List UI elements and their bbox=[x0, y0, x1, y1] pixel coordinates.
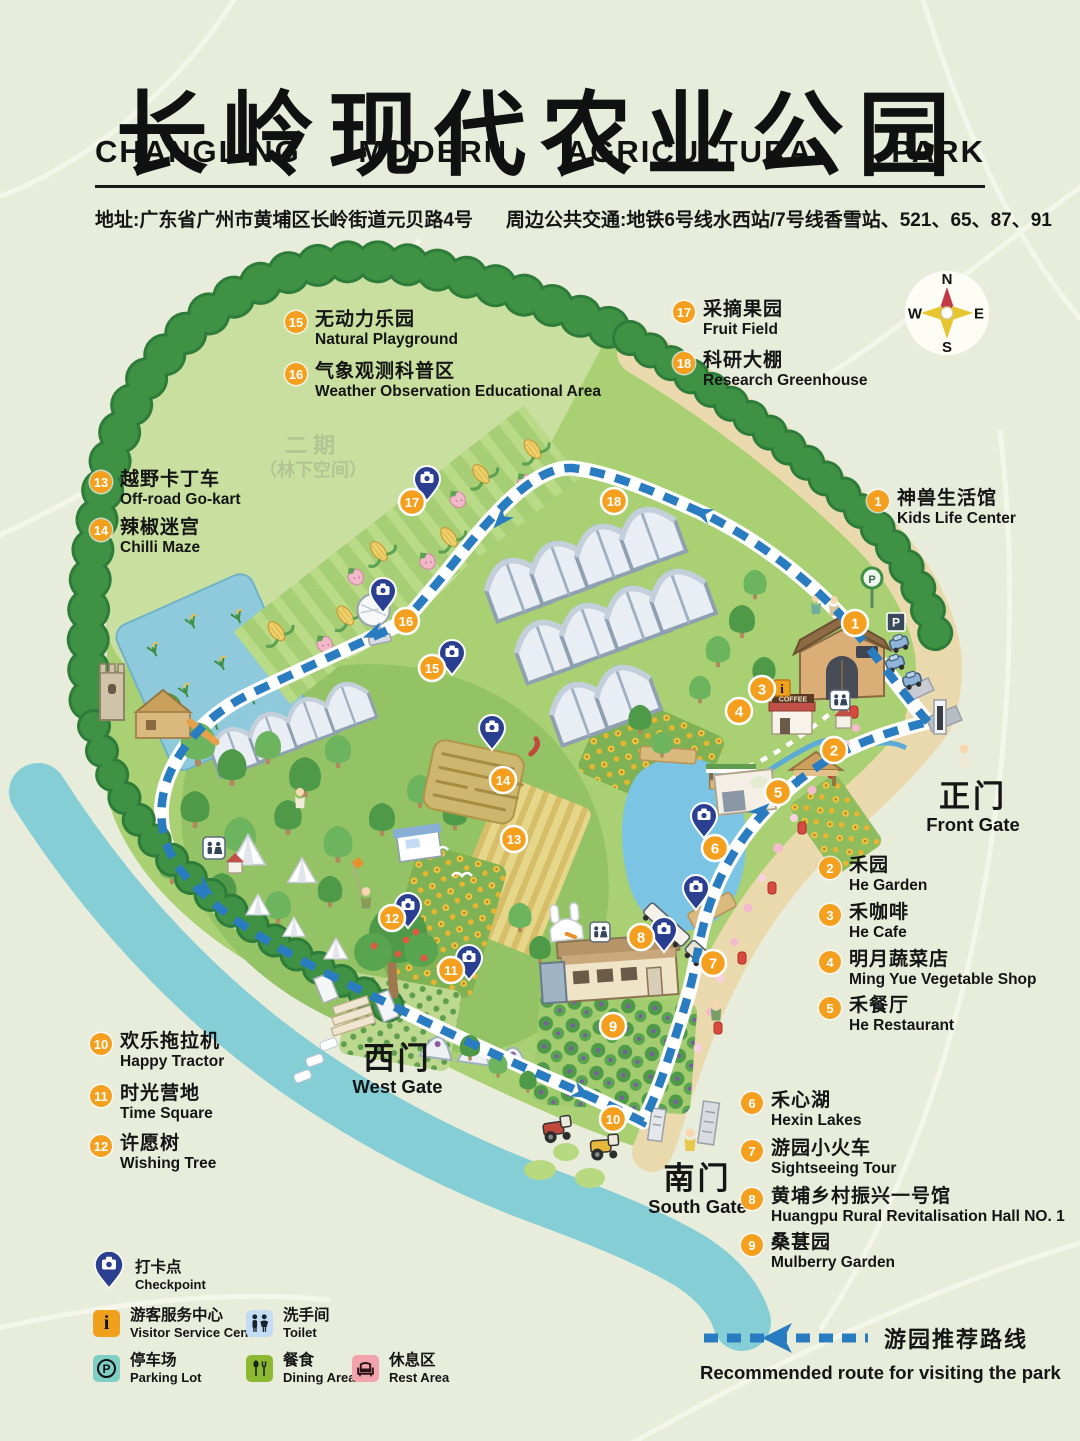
facility-zh: 休息区 bbox=[389, 1352, 449, 1369]
title-word: AGRICULTURAL bbox=[566, 134, 834, 170]
route-dash-icon bbox=[700, 1320, 872, 1356]
facility-parking: P 停车场Parking Lot bbox=[93, 1352, 202, 1385]
legend-zh: 气象观测科普区 bbox=[315, 362, 601, 381]
legend-zh: 桑葚园 bbox=[771, 1233, 895, 1252]
legend-badge: 18 bbox=[673, 352, 695, 374]
legend-badge: 16 bbox=[285, 363, 307, 385]
map-marker-1: 1 bbox=[842, 610, 868, 636]
front-gate-en: Front Gate bbox=[898, 814, 1048, 836]
legend-badge: 6 bbox=[741, 1092, 763, 1114]
svg-text:12: 12 bbox=[385, 911, 399, 926]
dining-icon bbox=[246, 1355, 273, 1382]
svg-text:17: 17 bbox=[405, 495, 419, 510]
svg-text:18: 18 bbox=[607, 494, 621, 509]
coffee-sign-text: COFFEE bbox=[779, 697, 808, 704]
svg-text:16: 16 bbox=[399, 614, 413, 629]
legend-zh: 禾心湖 bbox=[771, 1091, 861, 1110]
map-marker-13: 13 bbox=[501, 826, 527, 852]
legend-badge: 17 bbox=[673, 301, 695, 323]
camp-kiosk bbox=[393, 823, 445, 862]
legend-en: He Garden bbox=[849, 878, 927, 894]
legend-badge: 7 bbox=[741, 1140, 763, 1162]
west-gate-zh: 西门 bbox=[325, 1042, 470, 1076]
title-word: MODERN bbox=[358, 134, 508, 170]
legend-item-17: 17采摘果园Fruit Field bbox=[673, 300, 783, 338]
map-marker-4: 4 bbox=[726, 698, 752, 724]
park-map-poster: COFFEE i bbox=[0, 0, 1080, 1441]
map-marker-8: 8 bbox=[628, 924, 654, 950]
legend-zh: 辣椒迷宫 bbox=[120, 518, 200, 537]
legend-badge: 2 bbox=[819, 857, 841, 879]
west-gate-en: West Gate bbox=[325, 1076, 470, 1098]
map-marker-15: 15 bbox=[419, 655, 445, 681]
legend-en: Ming Yue Vegetable Shop bbox=[849, 972, 1036, 988]
legend-badge: 5 bbox=[819, 997, 841, 1019]
map-marker-18: 18 bbox=[601, 488, 627, 514]
map-marker-10: 10 bbox=[600, 1106, 626, 1132]
route-legend-zh: 游园推荐路线 bbox=[884, 1322, 1028, 1354]
facility-zh: 游客服务中心 bbox=[130, 1307, 265, 1324]
svg-text:15: 15 bbox=[425, 661, 439, 676]
legend-en: Chilli Maze bbox=[120, 540, 200, 556]
map-marker-9: 9 bbox=[600, 1013, 626, 1039]
legend-badge: 12 bbox=[90, 1135, 112, 1157]
facility-visitor-center: i 游客服务中心Visitor Service Center bbox=[93, 1307, 265, 1340]
legend-en: Kids Life Center bbox=[897, 511, 1016, 527]
svg-text:4: 4 bbox=[735, 704, 744, 721]
compass-e: E bbox=[974, 306, 984, 323]
legend-zh: 科研大棚 bbox=[703, 351, 868, 370]
phase2-line1: 二期 bbox=[228, 433, 398, 459]
front-gate-zh: 正门 bbox=[898, 780, 1048, 814]
west-gate-label: 西门 West Gate bbox=[325, 1042, 470, 1098]
legend-item-12: 12许愿树Wishing Tree bbox=[90, 1134, 216, 1172]
map-marker-11: 11 bbox=[438, 957, 464, 983]
legend-en: Time Square bbox=[120, 1106, 213, 1122]
parking-letter: P bbox=[97, 1359, 116, 1378]
map-marker-5: 5 bbox=[765, 779, 791, 805]
legend-badge: 8 bbox=[741, 1188, 763, 1210]
parking-sign-square: P bbox=[887, 613, 905, 631]
facility-zh: 餐食 bbox=[283, 1352, 355, 1369]
address-text: 地址:广东省广州市黄埔区长岭街道元贝路4号 bbox=[95, 205, 473, 232]
legend-en: Fruit Field bbox=[703, 322, 783, 338]
legend-badge: 9 bbox=[741, 1234, 763, 1256]
legend-item-3: 3禾咖啡He Cafe bbox=[819, 903, 909, 941]
legend-zh: 禾园 bbox=[849, 856, 927, 875]
facility-en: Dining Area bbox=[283, 1371, 355, 1385]
legend-zh: 采摘果园 bbox=[703, 300, 783, 319]
svg-text:11: 11 bbox=[444, 963, 458, 978]
legend-item-10: 10欢乐拖拉机Happy Tractor bbox=[90, 1032, 224, 1070]
svg-text:5: 5 bbox=[774, 785, 782, 802]
legend-en: Research Greenhouse bbox=[703, 373, 868, 389]
legend-en: He Cafe bbox=[849, 925, 909, 941]
compass-w: W bbox=[908, 306, 923, 323]
toilet-icon bbox=[246, 1310, 273, 1337]
header-divider bbox=[95, 185, 985, 188]
legend-zh: 禾餐厅 bbox=[849, 996, 954, 1015]
legend-en: He Restaurant bbox=[849, 1018, 954, 1034]
compass-s: S bbox=[942, 339, 952, 356]
legend-zh: 明月蔬菜店 bbox=[849, 950, 1036, 969]
legend-item-2: 2禾园He Garden bbox=[819, 856, 927, 894]
legend-badge: 1 bbox=[867, 490, 889, 512]
legend-item-11: 11时光营地Time Square bbox=[90, 1084, 213, 1122]
legend-item-6: 6禾心湖Hexin Lakes bbox=[741, 1091, 861, 1129]
legend-zh: 越野卡丁车 bbox=[120, 470, 241, 489]
facility-dining: 餐食Dining Area bbox=[246, 1352, 355, 1385]
map-marker-16: 16 bbox=[393, 608, 419, 634]
legend-item-16: 16气象观测科普区Weather Observation Educational… bbox=[285, 362, 601, 400]
facility-en: Visitor Service Center bbox=[130, 1326, 265, 1340]
legend-zh: 神兽生活馆 bbox=[897, 489, 1016, 508]
legend-item-7: 7游园小火车Sightseeing Tour bbox=[741, 1139, 896, 1177]
legend-item-4: 4明月蔬菜店Ming Yue Vegetable Shop bbox=[819, 950, 1036, 988]
legend-item-15: 15无动力乐园Natural Playground bbox=[285, 310, 458, 348]
legend-item-13: 13越野卡丁车Off-road Go-kart bbox=[90, 470, 241, 508]
facility-toilet: 洗手间Toilet bbox=[246, 1307, 330, 1340]
legend-zh: 无动力乐园 bbox=[315, 310, 458, 329]
map-marker-14: 14 bbox=[490, 767, 516, 793]
route-legend-en: Recommended route for visiting the park bbox=[700, 1362, 1030, 1384]
transit-text: 周边公共交通:地铁6号线水西站/7号线香雪站、521、65、87、91 bbox=[506, 205, 1052, 232]
parking-sign-letter: P bbox=[868, 574, 875, 586]
legend-badge: 11 bbox=[90, 1085, 112, 1107]
front-gate-label: 正门 Front Gate bbox=[898, 780, 1048, 836]
route-legend: 游园推荐路线 Recommended route for visiting th… bbox=[700, 1320, 1030, 1384]
legend-zh: 禾咖啡 bbox=[849, 903, 909, 922]
legend-zh: 时光营地 bbox=[120, 1084, 213, 1103]
svg-text:2: 2 bbox=[830, 743, 838, 760]
rest-area-icon bbox=[352, 1355, 379, 1382]
svg-text:6: 6 bbox=[711, 841, 719, 858]
facility-zh: 打卡点 bbox=[135, 1259, 206, 1276]
facility-en: Parking Lot bbox=[130, 1371, 202, 1385]
title-word: PARK bbox=[891, 134, 985, 170]
legend-item-1: 1神兽生活馆Kids Life Center bbox=[867, 489, 1016, 527]
legend-item-5: 5禾餐厅He Restaurant bbox=[819, 996, 954, 1034]
facility-rest-area: 休息区Rest Area bbox=[352, 1352, 449, 1385]
legend-en: Natural Playground bbox=[315, 332, 458, 348]
svg-text:7: 7 bbox=[709, 956, 717, 973]
legend-badge: 4 bbox=[819, 951, 841, 973]
facility-en: Checkpoint bbox=[135, 1278, 206, 1292]
map-marker-12: 12 bbox=[379, 905, 405, 931]
facility-checkpoint: 打卡点Checkpoint bbox=[93, 1252, 206, 1299]
legend-zh: 游园小火车 bbox=[771, 1139, 896, 1158]
svg-text:10: 10 bbox=[606, 1112, 620, 1127]
parking-sign-letter: P bbox=[892, 616, 900, 630]
legend-zh: 欢乐拖拉机 bbox=[120, 1032, 224, 1051]
svg-text:3: 3 bbox=[758, 682, 766, 699]
svg-text:14: 14 bbox=[496, 773, 511, 788]
legend-badge: 13 bbox=[90, 471, 112, 493]
legend-en: Weather Observation Educational Area bbox=[315, 384, 601, 400]
legend-item-18: 18科研大棚Research Greenhouse bbox=[673, 351, 868, 389]
map-marker-6: 6 bbox=[702, 835, 728, 861]
map-marker-17: 17 bbox=[399, 489, 425, 515]
legend-item-14: 14辣椒迷宫Chilli Maze bbox=[90, 518, 200, 556]
legend-zh: 许愿树 bbox=[120, 1134, 216, 1153]
svg-text:1: 1 bbox=[851, 616, 859, 633]
map-marker-7: 7 bbox=[700, 950, 726, 976]
legend-badge: 14 bbox=[90, 519, 112, 541]
legend-item-8: 8黄埔乡村振兴一号馆Huangpu Rural Revitalisation H… bbox=[741, 1187, 1065, 1225]
phase2-line2: （林下空间） bbox=[228, 459, 398, 482]
park-title-en: CHANGLING MODERN AGRICULTURAL PARK bbox=[95, 134, 985, 170]
legend-en: Wishing Tree bbox=[120, 1156, 216, 1172]
facility-zh: 洗手间 bbox=[283, 1307, 330, 1324]
parking-icon: P bbox=[93, 1355, 120, 1382]
map-marker-3: 3 bbox=[749, 676, 775, 702]
legend-en: Hexin Lakes bbox=[771, 1113, 861, 1129]
compass-n: N bbox=[942, 271, 953, 288]
facility-en: Rest Area bbox=[389, 1371, 449, 1385]
svg-text:13: 13 bbox=[507, 832, 521, 847]
facility-zh: 停车场 bbox=[130, 1352, 202, 1369]
legend-badge: 3 bbox=[819, 904, 841, 926]
legend-badge: 15 bbox=[285, 311, 307, 333]
legend-badge: 10 bbox=[90, 1033, 112, 1055]
legend-zh: 黄埔乡村振兴一号馆 bbox=[771, 1187, 1065, 1206]
info-icon: i bbox=[93, 1310, 120, 1337]
map-marker-2: 2 bbox=[821, 737, 847, 763]
svg-text:9: 9 bbox=[609, 1019, 617, 1036]
info-sign-glyph: i bbox=[780, 681, 784, 696]
facility-en: Toilet bbox=[283, 1326, 330, 1340]
svg-text:8: 8 bbox=[637, 930, 645, 947]
checkpoint-pin-icon bbox=[93, 1252, 125, 1299]
title-word: CHANGLING bbox=[95, 134, 301, 170]
legend-en: Sightseeing Tour bbox=[771, 1161, 896, 1177]
legend-en: Happy Tractor bbox=[120, 1054, 224, 1070]
legend-en: Off-road Go-kart bbox=[120, 492, 241, 508]
phase2-label: 二期 （林下空间） bbox=[228, 433, 398, 483]
legend-en: Mulberry Garden bbox=[771, 1255, 895, 1271]
legend-item-9: 9桑葚园Mulberry Garden bbox=[741, 1233, 895, 1271]
legend-en: Huangpu Rural Revitalisation Hall NO. 1 bbox=[771, 1209, 1065, 1225]
